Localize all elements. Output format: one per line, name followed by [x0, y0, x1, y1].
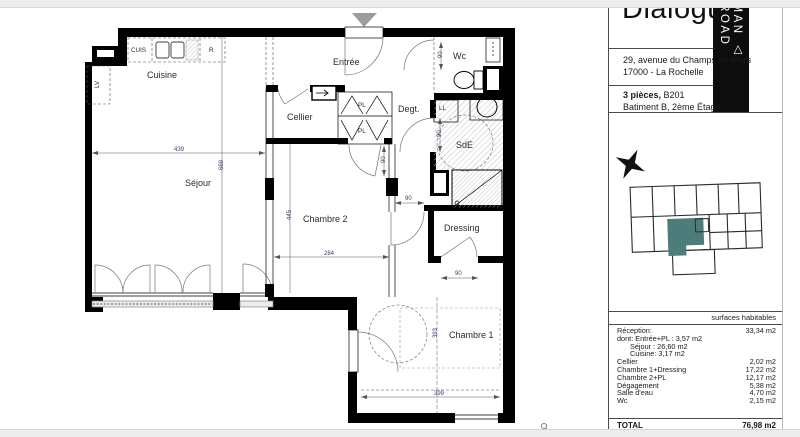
panel-right-border: [782, 0, 783, 430]
room-label-pl1: PL: [358, 102, 366, 109]
divider: [609, 85, 713, 86]
unit-line: 3 pièces, B201: [623, 90, 685, 100]
table-row: dont: Entrée+PL : 3,57 m2: [617, 335, 776, 342]
divider: [609, 48, 713, 49]
divider: [609, 418, 783, 419]
address-line2: 17000 - La Rochelle: [623, 66, 751, 78]
room-label-cellier: Cellier: [287, 112, 313, 122]
unit-number: B201: [664, 90, 685, 100]
areas-header: surfaces habitables: [711, 313, 776, 322]
sink-icon: [156, 42, 169, 58]
chambre1-furniture: [349, 305, 500, 390]
dim-399: 399: [434, 391, 445, 397]
room-label-sejour: Séjour: [185, 178, 211, 188]
unit-floor: Batiment B, 2ème Étage: [623, 102, 721, 112]
dim-90-chambre2: 90: [381, 156, 387, 163]
address-block: 29, avenue du Champs de Mars 17000 - La …: [623, 54, 751, 78]
divider: [609, 112, 783, 113]
toilet-icon: [454, 72, 474, 89]
dim-90-corridor: 90: [405, 196, 412, 202]
address-line1: 29, avenue du Champs de Mars: [623, 54, 751, 66]
entrance-door: [345, 27, 383, 75]
table-row: Chambre 2+PL12,17 m2: [617, 374, 776, 381]
room-label-chambre1: Chambre 1: [449, 330, 494, 340]
wc-fixtures: [454, 38, 503, 93]
dim-90-chambre1: 90: [455, 271, 462, 277]
info-panel: Dialogue FMAN △ BROAD 29, avenue du Cham…: [608, 0, 784, 430]
turning-circle: [369, 305, 427, 363]
room-label-wc: Wc: [453, 51, 466, 61]
table-row: Wc2,15 m2: [617, 397, 776, 404]
room-label-chambre2: Chambre 2: [303, 214, 348, 224]
dim-90-wc: 90: [438, 51, 444, 58]
room-label-entree: Entrée: [333, 57, 360, 67]
dim-669: 669: [219, 159, 225, 170]
label-dishwasher: LV: [94, 80, 101, 88]
divider: [609, 311, 783, 312]
label-washing-machine: LL: [439, 105, 447, 112]
north-compass-icon: [609, 143, 652, 186]
label-cuis: CUIS: [131, 47, 146, 54]
room-label-dressing: Dressing: [444, 223, 480, 233]
dim-393: 393: [433, 327, 439, 338]
label-refrigerator: R: [209, 47, 214, 54]
floor-plan: Cuisine CUIS R LV Séjour Entrée Cellier …: [0, 0, 600, 436]
page-top-border: [0, 0, 800, 8]
dim-284: 284: [324, 251, 335, 257]
key-plan: [609, 115, 783, 310]
balcony-railing: [92, 301, 273, 307]
room-label-pl2: PL: [358, 128, 366, 135]
dim-90-sde: 90: [437, 130, 443, 137]
divider: [609, 324, 783, 325]
dim-445: 445: [287, 209, 293, 220]
room-label-cuisine: Cuisine: [147, 70, 177, 80]
unit-type: 3 pièces,: [623, 90, 661, 100]
dim-439: 439: [174, 147, 185, 153]
room-label-sde: SdE: [456, 140, 473, 150]
areas-table: Réception:33,34 m2 dont: Entrée+PL : 3,5…: [617, 327, 776, 405]
sejour-french-doors: [92, 264, 272, 296]
room-label-degt: Degt.: [398, 104, 420, 114]
entrance-arrow-icon: [352, 13, 377, 27]
